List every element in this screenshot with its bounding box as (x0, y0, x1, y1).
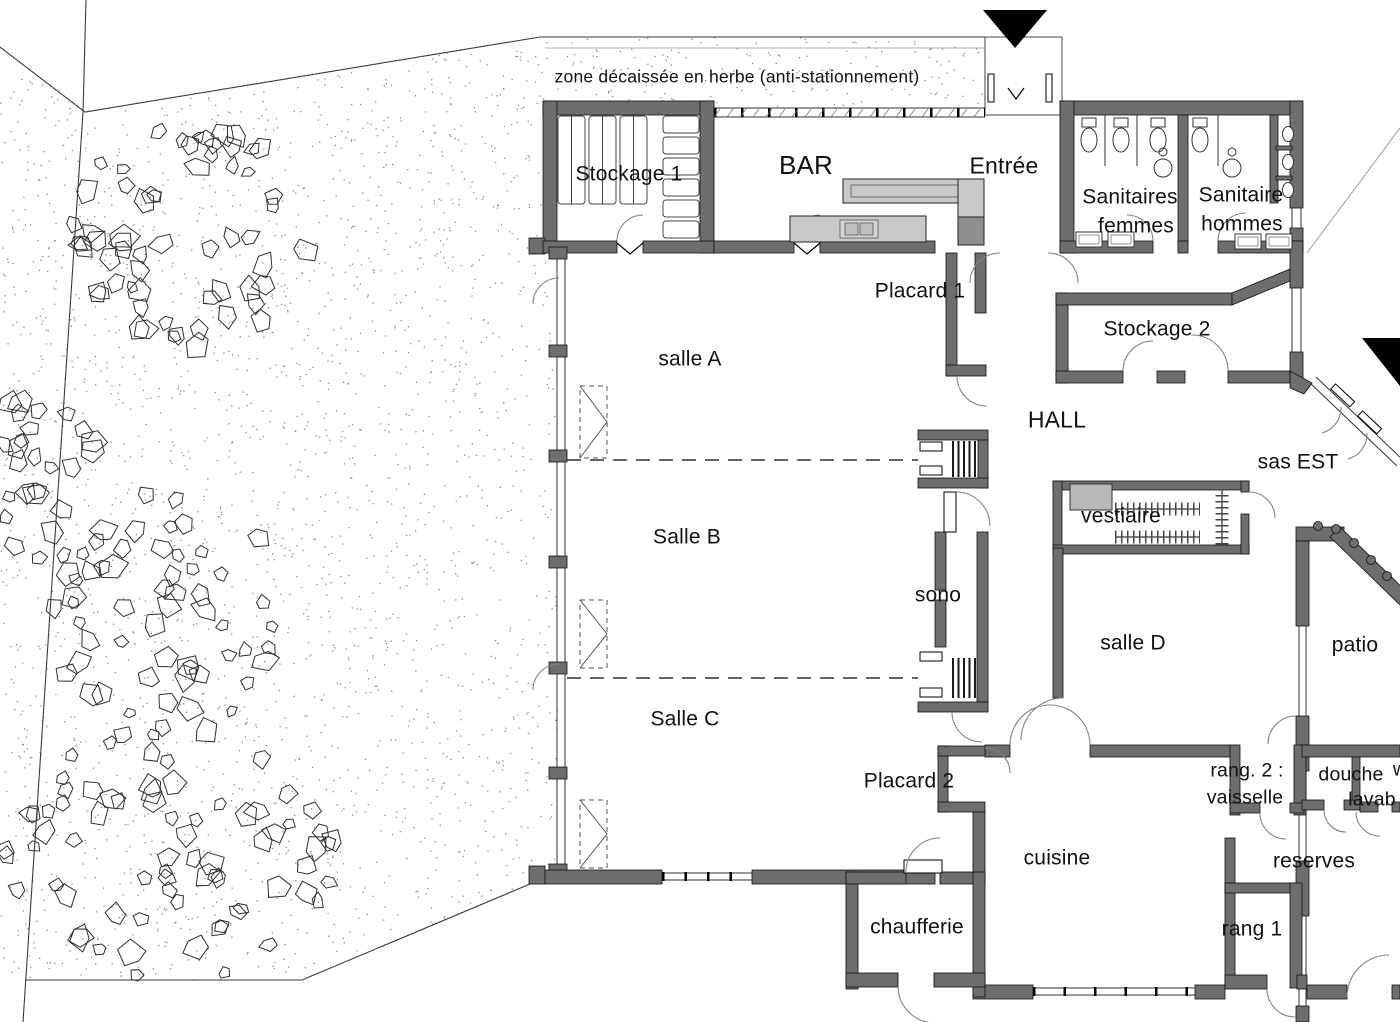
room-label-vestiaire: vestiaire (1081, 506, 1161, 527)
room-label-sanitaire-hommes-line2: hommes (1201, 214, 1283, 235)
room-label-sono: sono (915, 585, 961, 606)
room-label-hall: HALL (1028, 409, 1086, 432)
room-label-stockage-1: Stockage 1 (575, 164, 682, 185)
roof-overhang-lines (1307, 128, 1400, 253)
room-label-salle-b: Salle B (653, 527, 721, 548)
room-label-sanitaires-femmes-line1: Sanitaires (1082, 187, 1177, 208)
room-label-sas-est: sas EST (1258, 452, 1339, 473)
door-swing-arcs (533, 213, 1389, 1022)
north-entrance-arrow-icon (983, 10, 1047, 48)
room-label-reserves: reserves (1273, 851, 1355, 872)
bar-counter (790, 179, 984, 245)
movable-partition-tracks (567, 460, 918, 678)
room-label-entree: Entrée (970, 155, 1039, 178)
room-label-sanitaires-femmes-line2: femmes (1098, 216, 1174, 237)
room-label-douche: douche (1318, 765, 1383, 785)
room-label-placard-1: Placard 1 (875, 281, 966, 302)
plan-linework (0, 0, 1400, 1022)
room-label-placard-2: Placard 2 (864, 771, 955, 792)
louver-hatch (714, 109, 980, 117)
room-label-cuisine: cuisine (1024, 848, 1091, 869)
room-label-stockage-2: Stockage 2 (1103, 319, 1210, 340)
room-label-sanitaire-hommes-line1: Sanitaire (1199, 185, 1284, 206)
east-entrance-arrow-icon (1362, 338, 1400, 386)
room-label-rang-1: rang 1 (1222, 919, 1283, 940)
room-label-bar: BAR (779, 152, 833, 178)
room-label-chaufferie: chaufferie (870, 917, 964, 938)
terrain-stipple-texture (0, 37, 986, 980)
room-label-salle-a: salle A (658, 349, 721, 370)
room-label-wc-cut: w (1393, 760, 1400, 780)
room-label-patio: patio (1332, 635, 1379, 656)
site-boundary-lines (0, 0, 985, 1022)
room-label-rang-2-line2: vaisselle (1207, 788, 1284, 808)
room-label-salle-c: Salle C (650, 709, 719, 730)
site-note-label: zone décaissée en herbe (anti-stationnem… (555, 68, 920, 86)
partition-fold-symbols (580, 386, 607, 868)
floor-plan: zone décaissée en herbe (anti-stationnem… (0, 0, 1400, 1022)
room-label-rang-2-line1: rang. 2 : (1210, 761, 1283, 781)
shrub-cluster-symbols (0, 123, 341, 981)
room-label-salle-d: salle D (1100, 633, 1166, 654)
room-label-lavabo-cut: lavab (1348, 790, 1396, 810)
